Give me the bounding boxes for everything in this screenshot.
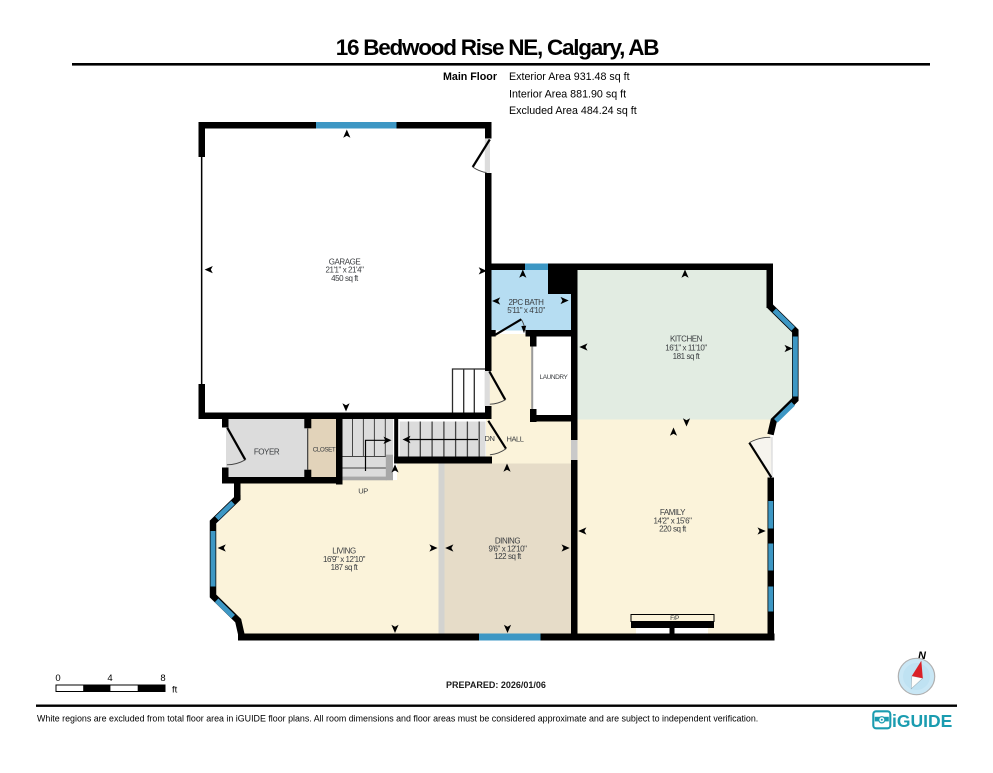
svg-text:Interior Area 881.90 sq ft: Interior Area 881.90 sq ft — [509, 89, 626, 101]
svg-text:8: 8 — [160, 673, 165, 684]
svg-text:220 sq ft: 220 sq ft — [659, 525, 687, 534]
svg-text:LIVING: LIVING — [332, 546, 356, 555]
svg-text:KITCHEN: KITCHEN — [670, 335, 703, 344]
svg-text:16'1" x 11'10": 16'1" x 11'10" — [665, 343, 707, 352]
svg-text:450 sq ft: 450 sq ft — [331, 274, 359, 283]
svg-text:Excluded Area 484.24 sq ft: Excluded Area 484.24 sq ft — [509, 105, 637, 117]
svg-text:16 Bedwood Rise NE, Calgary, A: 16 Bedwood Rise NE, Calgary, AB — [336, 35, 660, 60]
svg-text:5'11" x 4'10": 5'11" x 4'10" — [507, 306, 545, 315]
svg-text:187 sq ft: 187 sq ft — [331, 563, 359, 572]
svg-text:PREPARED: 2026/01/06: PREPARED: 2026/01/06 — [446, 680, 546, 690]
svg-text:White regions are excluded fro: White regions are excluded from total fl… — [37, 714, 758, 724]
svg-text:ft: ft — [172, 685, 178, 696]
svg-text:DN: DN — [485, 434, 495, 443]
svg-text:iGUIDE: iGUIDE — [892, 711, 952, 731]
svg-text:FOYER: FOYER — [254, 448, 280, 457]
svg-text:Exterior Area 931.48 sq ft: Exterior Area 931.48 sq ft — [509, 71, 630, 83]
svg-text:4: 4 — [107, 673, 112, 684]
svg-text:181 sq ft: 181 sq ft — [673, 352, 701, 361]
svg-text:HALL: HALL — [507, 435, 524, 444]
svg-text:Main Floor: Main Floor — [443, 71, 497, 83]
svg-text:UP: UP — [358, 487, 368, 496]
svg-text:FAMILY: FAMILY — [660, 508, 686, 517]
svg-text:0: 0 — [55, 673, 60, 684]
svg-text:122 sq ft: 122 sq ft — [494, 552, 522, 561]
svg-text:F/P: F/P — [670, 615, 679, 622]
svg-text:CLOSET: CLOSET — [313, 447, 336, 454]
svg-text:LAUNDRY: LAUNDRY — [540, 374, 569, 381]
